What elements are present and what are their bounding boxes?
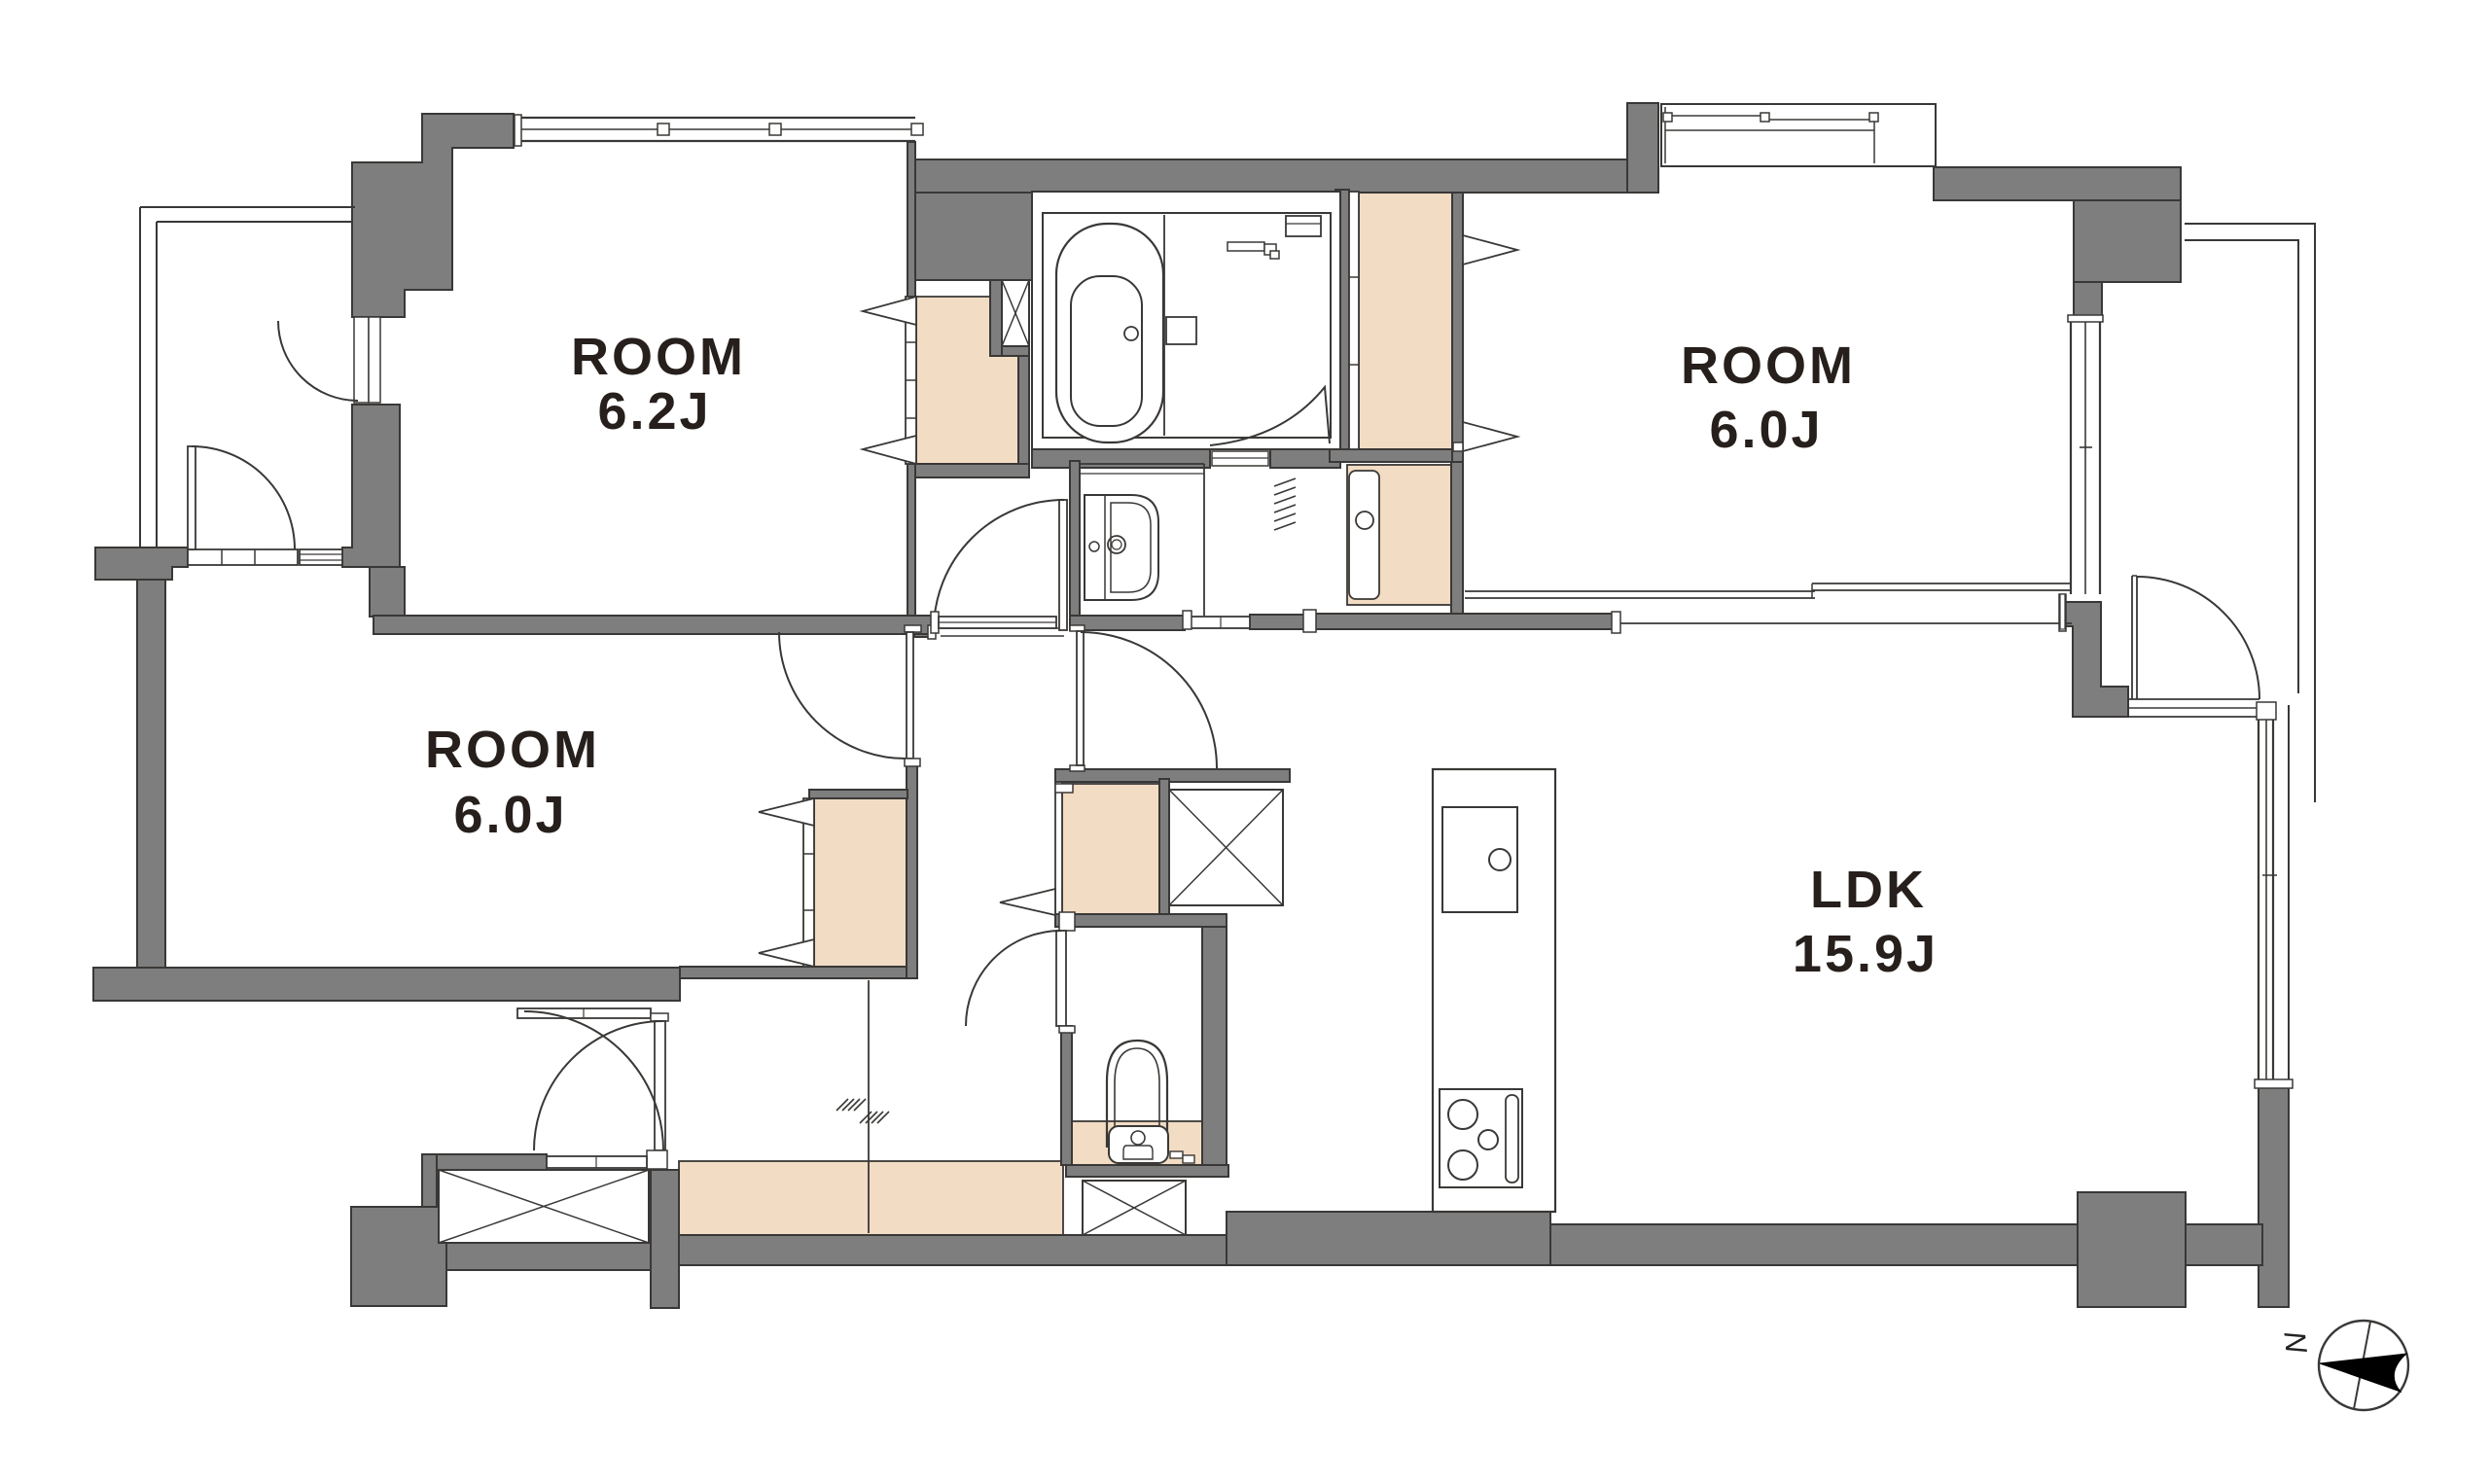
svg-text:LDK: LDK bbox=[1810, 861, 1927, 919]
svg-text:6.0J: 6.0J bbox=[1709, 401, 1823, 459]
svg-text:N: N bbox=[2278, 1329, 2314, 1356]
svg-text:ROOM: ROOM bbox=[571, 328, 746, 386]
svg-text:6.0J: 6.0J bbox=[453, 786, 567, 844]
svg-text:ROOM: ROOM bbox=[425, 721, 600, 779]
svg-text:6.2J: 6.2J bbox=[597, 382, 711, 441]
svg-text:ROOM: ROOM bbox=[1681, 336, 1856, 395]
svg-text:15.9J: 15.9J bbox=[1793, 925, 1939, 983]
